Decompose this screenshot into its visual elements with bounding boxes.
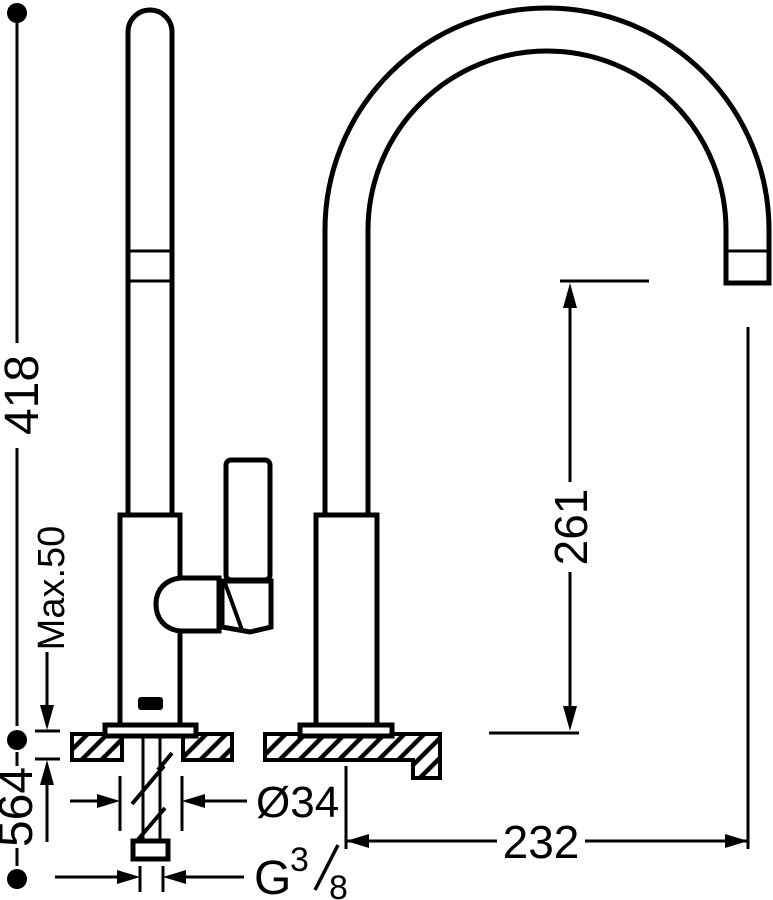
reference-dot-top (7, 3, 27, 23)
front-base-flange (105, 725, 196, 736)
dia34-arrow-right (182, 794, 205, 808)
reference-dot-bottom (7, 869, 27, 889)
faucet-technical-drawing: 418 564 Max.50 Ø34 G 3 8 (0, 0, 773, 900)
max50-arrow-down (40, 705, 54, 730)
front-spout-column (128, 10, 172, 517)
gooseneck-spout-tube (325, 8, 769, 517)
counter-right-slab (265, 734, 440, 778)
side-base-flange (300, 725, 392, 736)
reference-dot-counter (7, 730, 27, 750)
dim-label-thread-numerator: 3 (290, 841, 309, 879)
dim-label-232: 232 (503, 816, 580, 868)
drawing-page: 418 564 Max.50 Ø34 G 3 8 (0, 0, 773, 900)
dimension-height-reference: 418 564 (0, 3, 49, 889)
under-counter-shank (132, 736, 172, 859)
g38-arrow-left (117, 870, 140, 884)
faucet-side-view (300, 8, 769, 736)
h261-arrow-down (563, 706, 577, 731)
dimension-spout-reach: 232 (346, 327, 748, 868)
mounting-nut (133, 841, 168, 859)
brand-logo-mark (138, 697, 163, 710)
dim-label-418: 418 (0, 355, 49, 435)
side-body (316, 515, 377, 727)
countertop-section (72, 734, 440, 778)
dimension-inlet-thread: G 3 8 (55, 841, 348, 900)
handle-joint-block (222, 581, 271, 632)
dim-label-564: 564 (0, 767, 43, 847)
dimension-spout-height: 261 (489, 281, 649, 733)
faucet-front-view (105, 10, 271, 736)
dim-label-dia34: Ø34 (256, 778, 339, 827)
dim-label-max50: Max.50 (31, 526, 73, 651)
dimension-body-diameter: Ø34 (70, 776, 339, 831)
lever-handle (226, 460, 270, 580)
handle-joint-cap (156, 578, 219, 631)
g38-arrow-right (163, 870, 186, 884)
dia34-arrow-left (97, 794, 120, 808)
dim-label-thread-denominator: 8 (329, 869, 348, 900)
dim-label-261: 261 (545, 489, 597, 566)
h261-arrow-up (563, 283, 577, 308)
r232-arrow-right (725, 834, 748, 848)
dim-label-g: G (254, 852, 291, 900)
